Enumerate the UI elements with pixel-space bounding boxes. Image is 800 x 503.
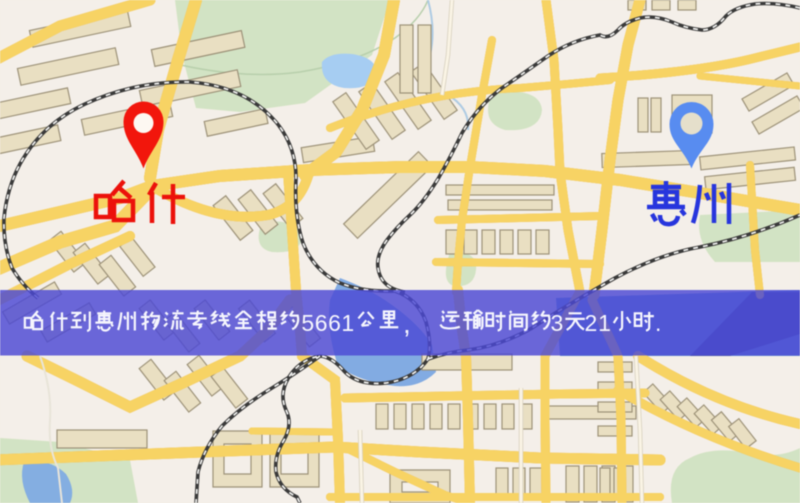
svg-text:5661: 5661: [301, 310, 354, 336]
svg-text:,: ,: [403, 308, 411, 339]
svg-text:3: 3: [551, 310, 564, 336]
svg-text:21: 21: [585, 310, 611, 336]
svg-text:.: .: [655, 310, 661, 336]
